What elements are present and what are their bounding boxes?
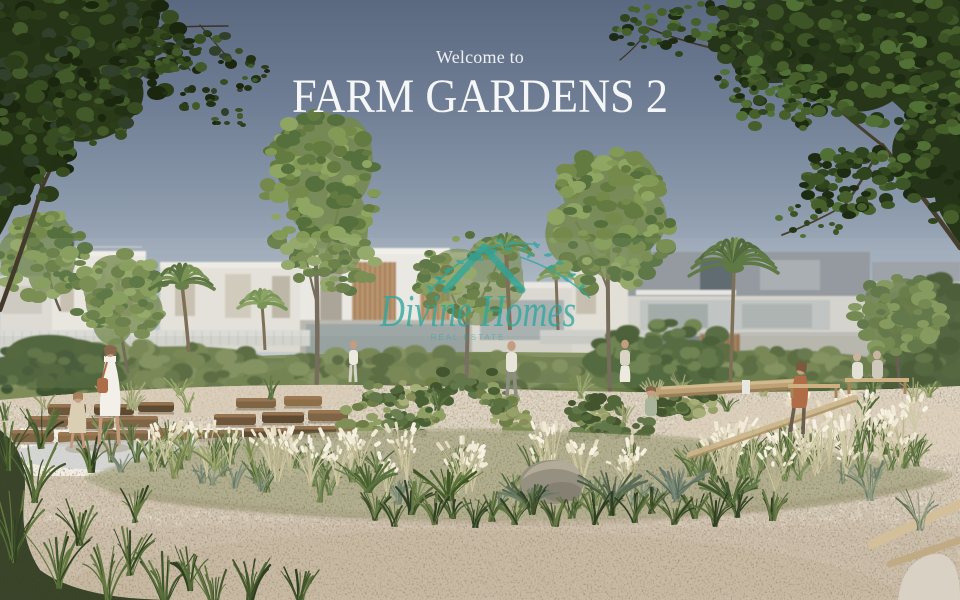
svg-text:REAL ESTATE: REAL ESTATE [431, 333, 506, 342]
svg-text:FARM GARDENS 2: FARM GARDENS 2 [292, 70, 668, 123]
svg-text:Welcome to: Welcome to [436, 47, 524, 67]
svg-text:Divine Homes: Divine Homes [379, 285, 576, 336]
